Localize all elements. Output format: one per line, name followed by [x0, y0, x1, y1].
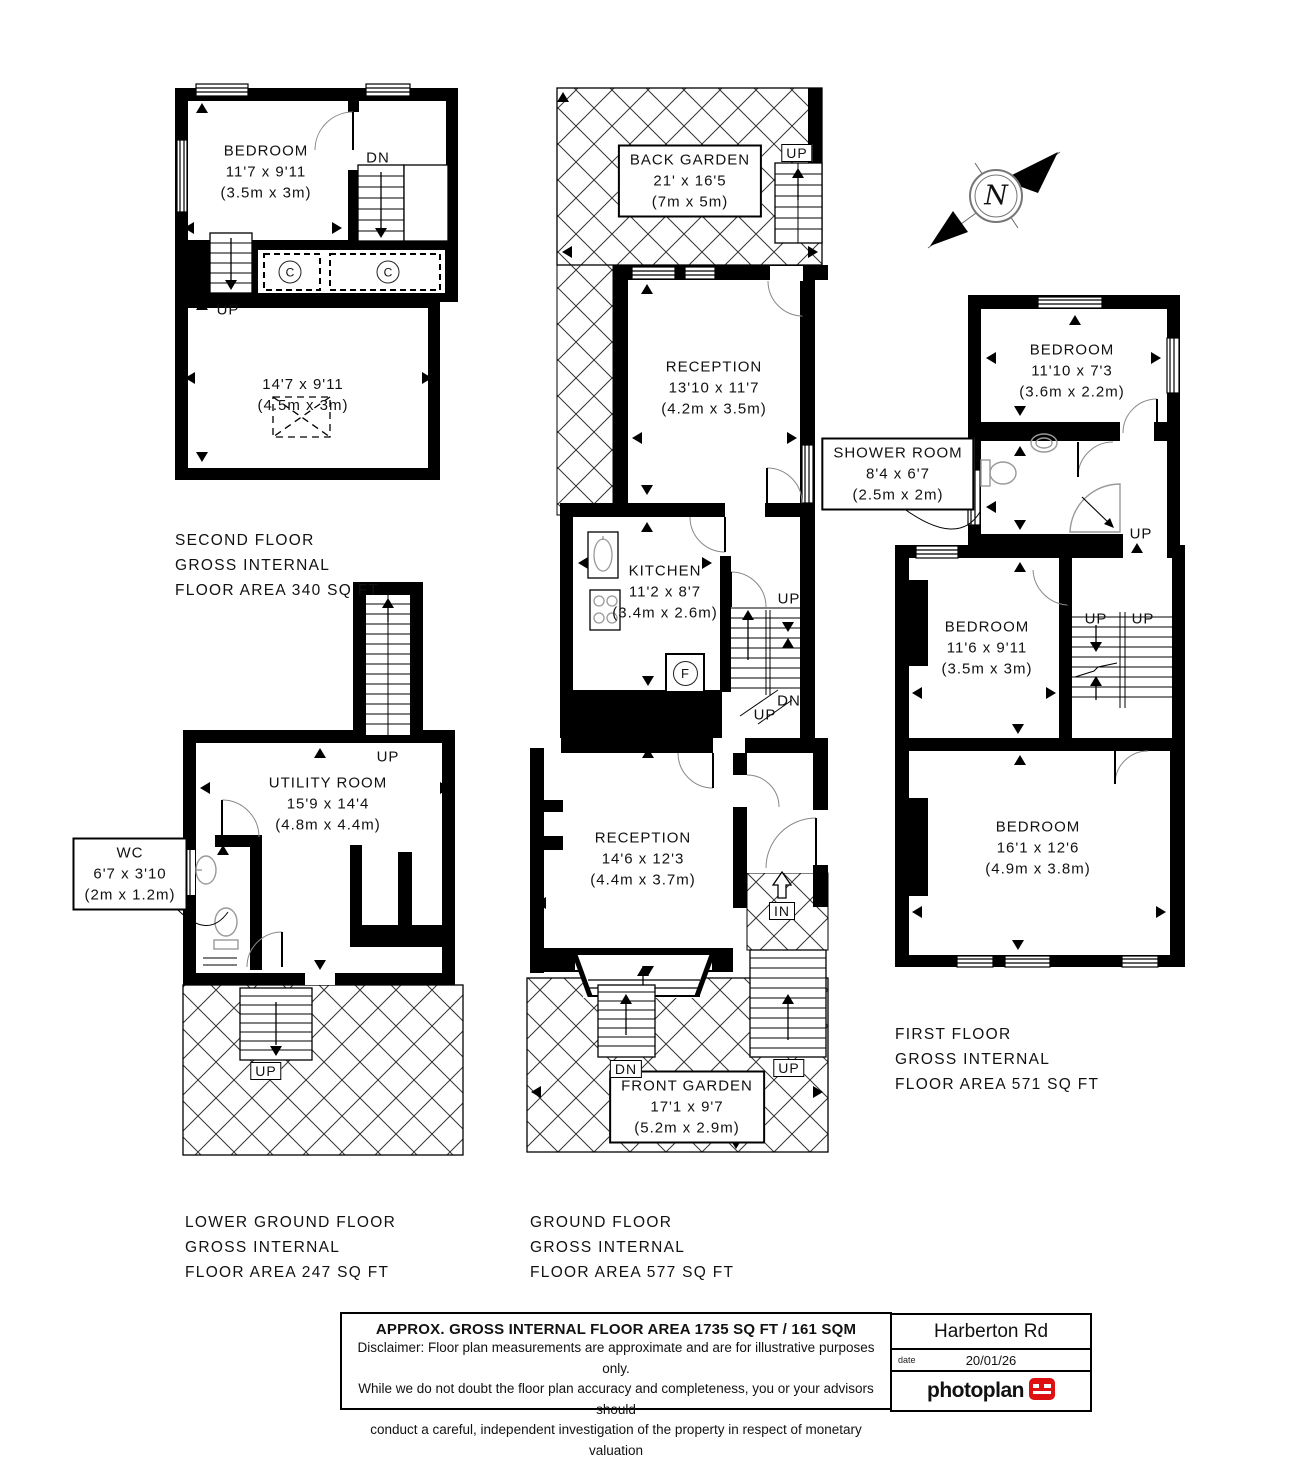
room-dim-metric: (4.4m x 3.7m) — [590, 870, 696, 891]
room-dim-imperial: 13'10 x 11'7 — [661, 378, 767, 399]
room-label-utility-room: UTILITY ROOM 15'9 x 14'4 (4.8m x 4.4m) — [269, 773, 387, 836]
room-dim-imperial: 21' x 16'5 — [630, 171, 750, 192]
room-dim-metric: (3.6m x 2.2m) — [1019, 382, 1125, 403]
room-dim-imperial: 14'7 x 9'11 — [257, 374, 348, 395]
floor-title-line: GROUND FLOOR — [530, 1210, 734, 1235]
disclaimer-text: conduct a careful, independent investiga… — [342, 1420, 890, 1461]
floor-title-line: LOWER GROUND FLOOR — [185, 1210, 396, 1235]
second-floor-plan — [175, 84, 458, 480]
room-dim-imperial: 15'9 x 14'4 — [269, 794, 387, 815]
room-name: BEDROOM — [1019, 340, 1125, 361]
room-dim-imperial: 11'6 x 9'11 — [941, 638, 1032, 659]
room-name: WC — [84, 843, 175, 864]
room-label-first-bedroom-rear: BEDROOM 11'10 x 7'3 (3.6m x 2.2m) — [1019, 340, 1125, 403]
disclaimer-text: While we do not doubt the floor plan acc… — [342, 1379, 890, 1420]
total-area-summary: APPROX. GROSS INTERNAL FLOOR AREA 1735 S… — [342, 1321, 890, 1338]
lower-ground-floor-plan — [178, 582, 463, 1155]
floor-title-line: GROSS INTERNAL — [185, 1235, 396, 1260]
dn-marker: DN — [777, 693, 801, 710]
floor-title-line: GROSS INTERNAL — [175, 553, 379, 578]
property-address: Harberton Rd — [892, 1315, 1090, 1350]
room-name: FRONT GARDEN — [621, 1076, 753, 1097]
room-name: UTILITY ROOM — [269, 773, 387, 794]
second-floor-up-stairs — [210, 233, 252, 293]
second-floor-title: SECOND FLOOR GROSS INTERNAL FLOOR AREA 3… — [175, 528, 379, 603]
room-label-back-garden: BACK GARDEN 21' x 16'5 (7m x 5m) — [618, 145, 762, 218]
fridge-symbol: F — [665, 653, 705, 693]
room-dim-metric: (2.5m x 2m) — [833, 485, 962, 506]
room-label-reception-rear: RECEPTION 13'10 x 11'7 (4.2m x 3.5m) — [661, 357, 767, 420]
up-marker: UP — [1085, 611, 1108, 628]
first-floor-title: FIRST FLOOR GROSS INTERNAL FLOOR AREA 57… — [895, 1022, 1099, 1097]
room-label-kitchen: KITCHEN 11'2 x 8'7 (3.4m x 2.6m) — [612, 561, 718, 624]
room-dim-imperial: 11'2 x 8'7 — [612, 582, 718, 603]
dn-marker: DN — [610, 1060, 642, 1078]
second-floor-dn-stairs — [358, 165, 448, 241]
up-marker: UP — [377, 749, 400, 766]
up-marker: UP — [1132, 611, 1155, 628]
room-dim-imperial: 17'1 x 9'7 — [621, 1097, 753, 1118]
closet-symbol: C — [279, 261, 302, 284]
room-label-second-room: 14'7 x 9'11 (4.5m x 3m) — [257, 374, 348, 416]
room-dim-imperial: 11'10 x 7'3 — [1019, 361, 1125, 382]
room-label-first-bedroom-mid: BEDROOM 11'6 x 9'11 (3.5m x 3m) — [941, 617, 1032, 680]
room-label-front-garden: FRONT GARDEN 17'1 x 9'7 (5.2m x 2.9m) — [609, 1071, 765, 1144]
date-value: 20/01/26 — [892, 1353, 1090, 1368]
closet-symbol: C — [377, 261, 400, 284]
floor-title-line: FLOOR AREA 247 SQ FT — [185, 1260, 396, 1285]
up-marker: UP — [217, 302, 240, 319]
front-garden-dn-steps — [598, 985, 655, 1057]
disclaimer-text: Disclaimer: Floor plan measurements are … — [342, 1338, 890, 1379]
room-dim-metric: (4.2m x 3.5m) — [661, 399, 767, 420]
room-name: RECEPTION — [661, 357, 767, 378]
compass-north-label: N — [984, 181, 1008, 212]
room-dim-metric: (3.5m x 3m) — [941, 659, 1032, 680]
room-name: BEDROOM — [985, 817, 1091, 838]
up-marker: UP — [250, 1062, 281, 1080]
in-marker: IN — [769, 902, 795, 920]
ground-floor-title: GROUND FLOOR GROSS INTERNAL FLOOR AREA 5… — [530, 1210, 734, 1285]
photoplan-logo-icon — [1029, 1378, 1055, 1405]
room-dim-imperial: 16'1 x 12'6 — [985, 838, 1091, 859]
room-dim-imperial: 14'6 x 12'3 — [590, 849, 696, 870]
up-marker: UP — [1130, 526, 1153, 543]
room-dim-imperial: 8'4 x 6'7 — [833, 464, 962, 485]
floor-title-line: SECOND FLOOR — [175, 528, 379, 553]
floor-title-line: FLOOR AREA 340 SQ FT — [175, 578, 379, 603]
room-name: KITCHEN — [612, 561, 718, 582]
disclaimer-box: APPROX. GROSS INTERNAL FLOOR AREA 1735 S… — [340, 1312, 892, 1410]
title-block: Harberton Rd date 20/01/26 photoplan — [890, 1313, 1092, 1412]
front-entrance-steps — [750, 950, 826, 1057]
up-marker: UP — [781, 144, 812, 162]
up-marker: UP — [754, 707, 777, 724]
room-label-second-bedroom: BEDROOM 11'7 x 9'11 (3.5m x 3m) — [220, 141, 311, 204]
floor-title-line: FLOOR AREA 577 SQ FT — [530, 1260, 734, 1285]
room-name: SHOWER ROOM — [833, 443, 962, 464]
room-dim-metric: (3.4m x 2.6m) — [612, 603, 718, 624]
floorplan-page: BEDROOM 11'7 x 9'11 (3.5m x 3m) 14'7 x 9… — [0, 0, 1300, 1484]
room-label-reception-front: RECEPTION 14'6 x 12'3 (4.4m x 3.7m) — [590, 828, 696, 891]
room-name: BACK GARDEN — [630, 150, 750, 171]
back-garden-stairs — [775, 163, 822, 243]
room-dim-metric: (4.8m x 4.4m) — [269, 815, 387, 836]
lower-garden-stairs — [240, 988, 312, 1060]
dn-marker: DN — [366, 150, 390, 167]
lower-ground-floor-title: LOWER GROUND FLOOR GROSS INTERNAL FLOOR … — [185, 1210, 396, 1285]
floor-title-line: GROSS INTERNAL — [895, 1047, 1099, 1072]
floor-title-line: GROSS INTERNAL — [530, 1235, 734, 1260]
room-label-shower-room: SHOWER ROOM 8'4 x 6'7 (2.5m x 2m) — [821, 438, 974, 511]
up-marker: UP — [773, 1059, 804, 1077]
up-marker: UP — [778, 591, 801, 608]
room-dim-metric: (4.5m x 3m) — [257, 395, 348, 416]
floor-title-line: FIRST FLOOR — [895, 1022, 1099, 1047]
room-label-first-bedroom-front: BEDROOM 16'1 x 12'6 (4.9m x 3.8m) — [985, 817, 1091, 880]
room-name: RECEPTION — [590, 828, 696, 849]
room-name: BEDROOM — [220, 141, 311, 162]
date-row: date 20/01/26 — [892, 1350, 1090, 1372]
room-dim-imperial: 11'7 x 9'11 — [220, 162, 311, 183]
room-name: BEDROOM — [941, 617, 1032, 638]
room-dim-imperial: 6'7 x 3'10 — [84, 864, 175, 885]
room-dim-metric: (4.9m x 3.8m) — [985, 859, 1091, 880]
room-dim-metric: (7m x 5m) — [630, 192, 750, 213]
fridge-letter: F — [673, 661, 698, 686]
room-dim-metric: (5.2m x 2.9m) — [621, 1118, 753, 1139]
room-dim-metric: (2m x 1.2m) — [84, 885, 175, 906]
room-dim-metric: (3.5m x 3m) — [220, 183, 311, 204]
brand-name: photoplan — [927, 1379, 1024, 1403]
room-label-wc: WC 6'7 x 3'10 (2m x 1.2m) — [72, 838, 187, 911]
floor-title-line: FLOOR AREA 571 SQ FT — [895, 1072, 1099, 1097]
brand-row: photoplan — [892, 1372, 1090, 1410]
